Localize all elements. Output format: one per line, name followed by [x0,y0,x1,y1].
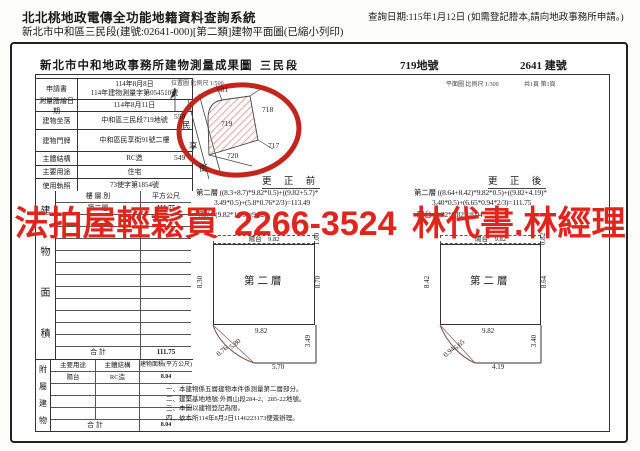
note-line: 三、本圖以建物登記為限。 [166,404,466,414]
before-left-dim: 8.30 [196,276,204,288]
parcel-681-label: 681 [217,85,228,94]
section-name: 三民段 [260,57,299,73]
north-arrow-icon [171,88,175,111]
row-label: 測量謄繪日期 [36,100,78,111]
annex-use: 陽台 [51,372,96,383]
notes-block: 一、本建物係五層建物本件係測量第二層部分。 二、建築基地地號:外員山段284-2… [166,385,466,423]
after-lower-bottom-dim: 4.19 [492,363,504,371]
before-floor-label: 第二層 [244,273,285,288]
parcel-717-label: 717 [268,141,279,150]
document-subtitle: 新北市中和區三民段(建號:02641-000)[第二類]建物平面圖(已縮小列印) [22,24,343,39]
total-label: 合 計 [56,347,141,359]
sheet-title: 新北市中和地政事務所建物測量成果圖 [40,57,253,73]
annex-total-label: 合 計 [51,420,140,431]
location-map [166,78,316,184]
annex-data-row: 陽台 RC造 8.04 [51,372,192,384]
area-empty-row [56,275,191,287]
row-label: 主體結構 [36,152,78,165]
street-char-1: 民 [182,119,191,131]
row-label: 主要用途 [36,166,78,178]
annex-header-row: 主要用途 主體結構 建物面積(平方公尺) [51,360,192,372]
row-label: 建物門牌 [36,130,78,151]
before-lower-right-dim: 3.49 [304,335,312,347]
before-lower-bottom-dim: 5.70 [272,363,284,371]
street-char-3: 街 [199,162,208,174]
area-empty-row [56,287,191,299]
area-empty-row [56,251,191,263]
parcel-720-label: 720 [227,151,238,160]
area-empty-row [56,263,191,275]
after-lower-right-dim: 3.40 [530,335,538,347]
measurement-sheet: 申請書 114年8月8日 114年建物測量字第054510號 測量謄繪日期 11… [35,74,610,432]
area-empty-row [56,311,191,323]
after-floor-label: 第二層 [470,273,511,288]
col-header-use: 主要用途 [51,360,96,371]
query-date: 查詢日期:115年1月12日 (如需登記謄本,請向地政事務所申請。) [368,9,624,23]
note-line: 四、依本所114年8月2日1146223173便簽辦理。 [166,414,466,424]
land-number: 719地號 [400,57,439,73]
page-info-label: 共1頁 第1頁 [524,79,556,88]
street-char-2: 享 [189,140,198,152]
plan-scale-label: 平面圖 比例尺 1/300 [446,79,499,88]
col-header-structure: 主體結構 [96,360,140,371]
parcel-549-label: 549 [174,153,185,162]
area-total-row: 合 計 111.75 [56,347,191,359]
col-header-area: 建物面積(平方公尺) [140,360,192,371]
watermark: 法拍屋輕鬆買 2266-3524 林代書.林經理 [0,196,640,245]
row-label: 建物坐落 [36,112,78,129]
total-area: 111.75 [141,347,191,359]
after-left-dim: 8.42 [423,276,431,288]
area-empty-row [56,299,191,311]
area-empty-row [56,335,191,347]
parcel-719-label: 719 [221,119,232,128]
annex-side-label: 附屬建物 [36,360,51,431]
annex-structure: RC造 [96,372,140,383]
before-right-dim: 8.70 [314,276,322,288]
after-right-dim: 8.64 [540,276,548,288]
registry-query-screen: 北北桃地政電傳全功能地籍資料查詢系統 新北市中和區三民段(建號:02641-00… [0,0,640,451]
area-empty-row [56,323,191,335]
parcel-718-label: 718 [262,105,273,114]
building-number: 2641 建號 [520,57,567,73]
note-line: 二、建築基地地號:外員山段284-2、285-22地號。 [166,395,466,405]
application-date: 114年8月8日 [115,80,153,89]
note-line: 一、本建物係五層建物本件係測量第二層部分。 [166,385,466,395]
annex-area: 8.04 [140,372,192,383]
